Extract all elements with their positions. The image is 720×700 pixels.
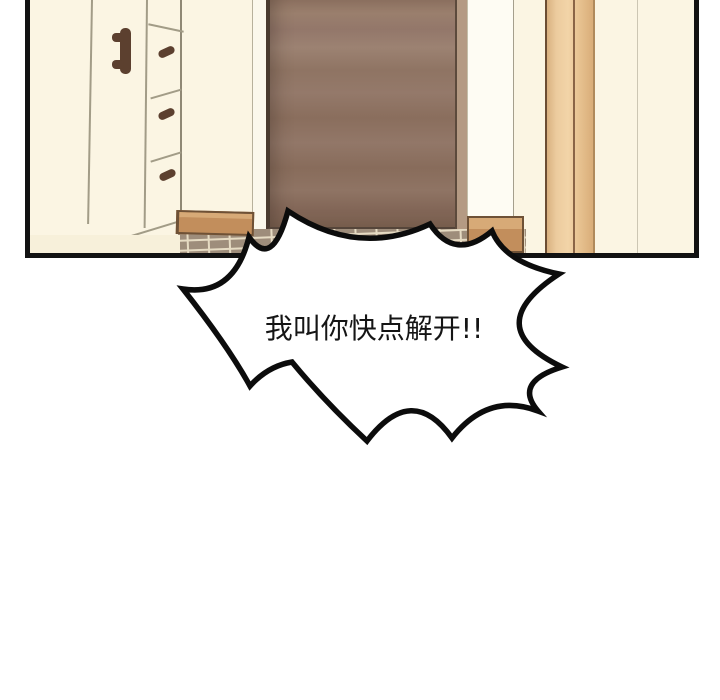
speech-bubble-text: 我叫你快点解开!! xyxy=(254,312,494,346)
comic-page: 我叫你快点解开!! xyxy=(0,0,720,700)
speech-bubble xyxy=(0,0,720,700)
